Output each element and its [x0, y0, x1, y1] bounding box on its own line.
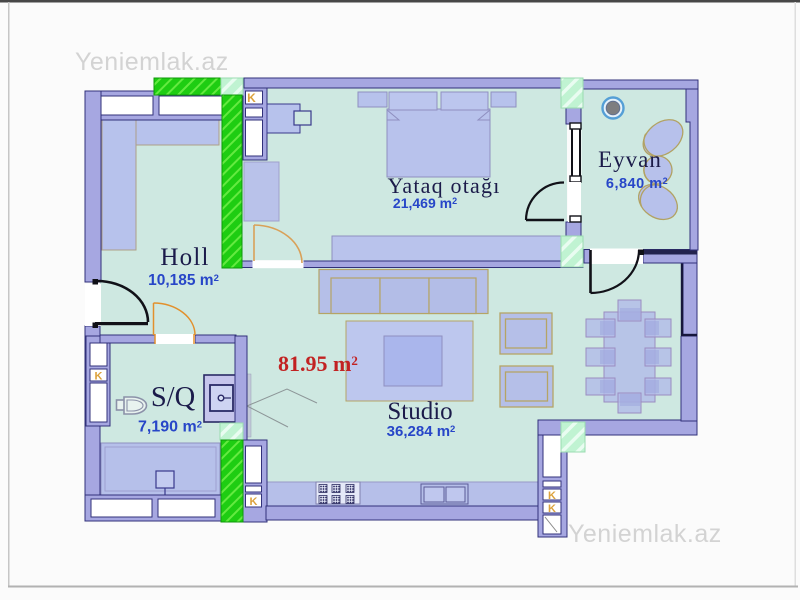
svg-text:S/Q: S/Q: [151, 382, 196, 413]
svg-text:21,469 m2: 21,469 m2: [393, 195, 457, 211]
svg-text:K: K: [95, 371, 103, 383]
svg-text:K: K: [548, 490, 556, 502]
svg-text:10,185 m2: 10,185 m2: [148, 272, 219, 289]
svg-text:6,840 m2: 6,840 m2: [606, 176, 668, 192]
svg-text:Holl: Holl: [160, 244, 209, 271]
svg-text:K: K: [548, 503, 556, 515]
svg-text:K: K: [247, 91, 256, 105]
svg-text:7,190 m2: 7,190 m2: [138, 419, 202, 436]
svg-text:Eyvan: Eyvan: [598, 147, 662, 172]
svg-text:36,284 m2: 36,284 m2: [387, 423, 456, 440]
svg-text:K: K: [250, 496, 258, 508]
svg-text:Yeniemlak.az: Yeniemlak.az: [568, 520, 722, 548]
svg-text:Studio: Studio: [387, 398, 452, 425]
svg-text:Yeniemlak.az: Yeniemlak.az: [75, 48, 229, 76]
svg-text:81.95 m2: 81.95 m2: [278, 351, 358, 376]
